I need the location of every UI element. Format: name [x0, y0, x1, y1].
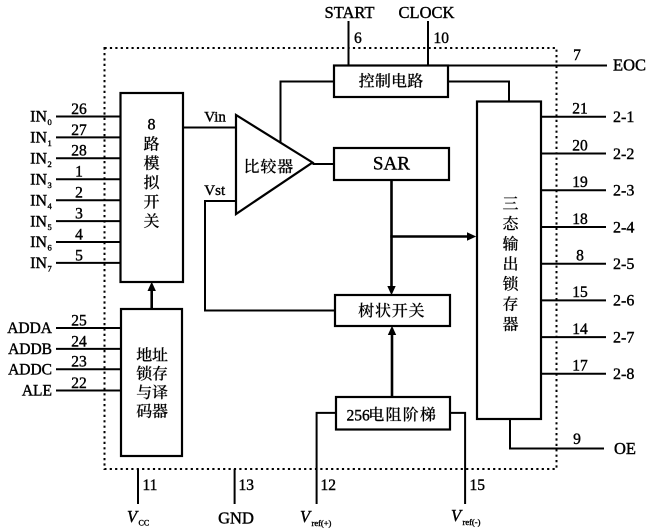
svg-text:20: 20	[572, 137, 588, 154]
svg-text:IN: IN	[30, 192, 47, 209]
svg-text:12: 12	[321, 477, 337, 494]
svg-text:6: 6	[354, 30, 362, 47]
svg-text:27: 27	[71, 122, 87, 139]
svg-text:ADDB: ADDB	[8, 341, 52, 358]
svg-text:2-4: 2-4	[613, 219, 634, 236]
svg-text:SAR: SAR	[373, 153, 410, 174]
svg-text:IN: IN	[30, 213, 47, 230]
svg-text:2-2: 2-2	[613, 146, 634, 163]
svg-text:START: START	[325, 3, 375, 22]
svg-text:13: 13	[239, 477, 255, 494]
svg-text:26: 26	[71, 101, 87, 118]
svg-text:IN: IN	[30, 234, 47, 251]
svg-text:IN: IN	[30, 255, 47, 272]
svg-text:IN: IN	[30, 109, 47, 126]
svg-text:2-7: 2-7	[613, 329, 634, 346]
svg-text:3: 3	[75, 206, 83, 223]
svg-text:18: 18	[572, 211, 588, 228]
svg-text:4: 4	[75, 226, 83, 243]
svg-text:5: 5	[48, 222, 52, 232]
svg-text:21: 21	[572, 101, 588, 118]
svg-text:2-5: 2-5	[613, 256, 634, 273]
svg-text:0: 0	[48, 117, 52, 127]
svg-text:OE: OE	[614, 439, 636, 458]
svg-text:256: 256	[347, 408, 371, 425]
svg-text:1: 1	[75, 164, 83, 181]
svg-text:CLOCK: CLOCK	[399, 3, 455, 22]
svg-text:19: 19	[572, 174, 588, 191]
svg-text:ALE: ALE	[22, 383, 52, 400]
svg-text:10: 10	[434, 30, 450, 47]
svg-text:Vst: Vst	[204, 183, 226, 199]
svg-text:IN: IN	[30, 172, 47, 189]
svg-text:2: 2	[75, 185, 83, 202]
svg-text:25: 25	[71, 312, 87, 329]
svg-text:GND: GND	[218, 509, 254, 528]
svg-text:23: 23	[71, 354, 87, 371]
svg-text:IN: IN	[30, 130, 47, 147]
svg-text:8: 8	[576, 248, 584, 265]
svg-text:CC: CC	[139, 519, 150, 528]
svg-text:24: 24	[71, 333, 87, 350]
svg-text:2-8: 2-8	[613, 366, 634, 383]
svg-text:28: 28	[71, 143, 87, 160]
svg-text:2-3: 2-3	[613, 183, 634, 200]
svg-text:17: 17	[572, 358, 588, 375]
svg-text:15: 15	[572, 284, 588, 301]
svg-text:7: 7	[573, 47, 581, 64]
svg-text:ref(+): ref(+)	[312, 518, 332, 528]
svg-text:11: 11	[143, 477, 158, 494]
svg-text:Vin: Vin	[204, 110, 226, 126]
svg-text:15: 15	[470, 477, 486, 494]
svg-text:ADDC: ADDC	[8, 362, 52, 379]
svg-text:ref(-): ref(-)	[463, 517, 481, 527]
svg-text:2-1: 2-1	[613, 109, 634, 126]
svg-text:IN: IN	[30, 151, 47, 168]
svg-text:5: 5	[75, 247, 83, 264]
svg-text:22: 22	[71, 375, 87, 392]
svg-text:8: 8	[148, 117, 156, 134]
svg-text:9: 9	[573, 431, 581, 448]
svg-text:2: 2	[48, 159, 52, 169]
svg-text:3: 3	[48, 180, 52, 190]
svg-text:ADDA: ADDA	[7, 320, 53, 337]
svg-text:6: 6	[48, 243, 52, 253]
svg-text:14: 14	[572, 321, 588, 338]
svg-text:2-6: 2-6	[613, 293, 634, 310]
svg-text:7: 7	[48, 264, 52, 274]
svg-text:EOC: EOC	[613, 56, 646, 75]
svg-text:1: 1	[48, 138, 52, 148]
